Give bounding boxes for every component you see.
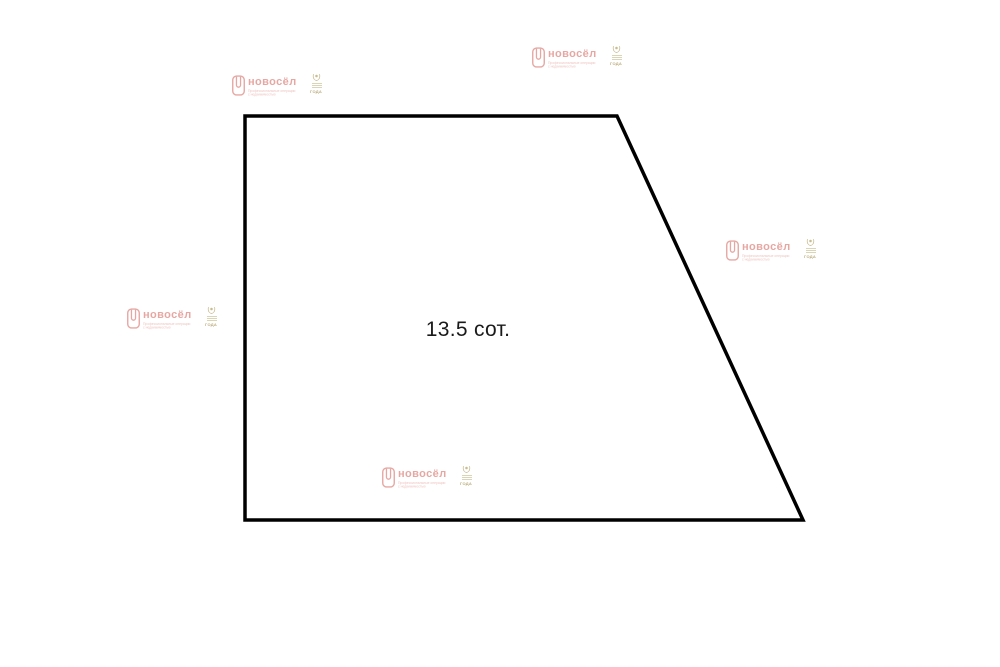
plot-plan-image: 13.5 сот. новосёл Профессиональные опера… <box>0 0 1000 667</box>
area-label: 13.5 сот. <box>388 317 548 342</box>
